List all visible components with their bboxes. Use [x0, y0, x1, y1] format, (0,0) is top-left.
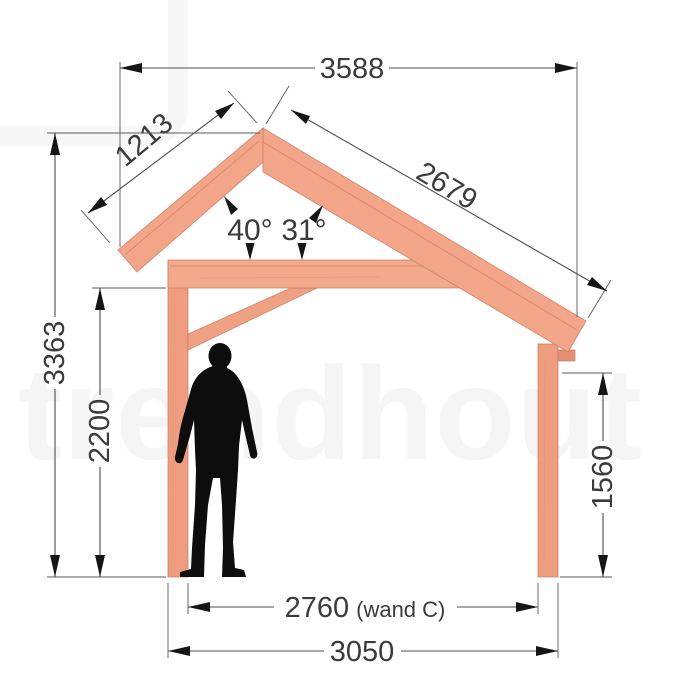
timber-structure: [118, 128, 586, 577]
dim-right-post-height-label: 1560: [587, 445, 619, 510]
brace: [188, 288, 317, 350]
cross-beam: [168, 260, 460, 288]
dim-right-post-height: 1560: [562, 373, 619, 577]
left-roof-angle-label: 40°: [227, 214, 272, 247]
dim-outer-span: 3050: [168, 583, 558, 668]
dim-right-rafter-label: 2679: [411, 156, 483, 217]
dim-clearance-height-label: 2200: [84, 399, 116, 464]
right-post: [538, 344, 575, 577]
dim-clearance-height: 2200: [84, 288, 166, 577]
right-roof-angle-label: 31°: [281, 214, 326, 247]
dim-inner-span: 2760(wand C): [188, 583, 538, 624]
dim-outer-span-label: 3050: [330, 636, 395, 668]
dim-total-height-label: 3363: [39, 321, 71, 386]
roof-angle-annotations: 40° 31°: [224, 196, 327, 260]
dim-top-width-label: 3588: [320, 53, 385, 85]
dim-inner-span-label: 2760(wand C): [285, 592, 446, 624]
elevation-drawing: 3588 1213 2679 40° 31° 3363: [0, 0, 700, 700]
